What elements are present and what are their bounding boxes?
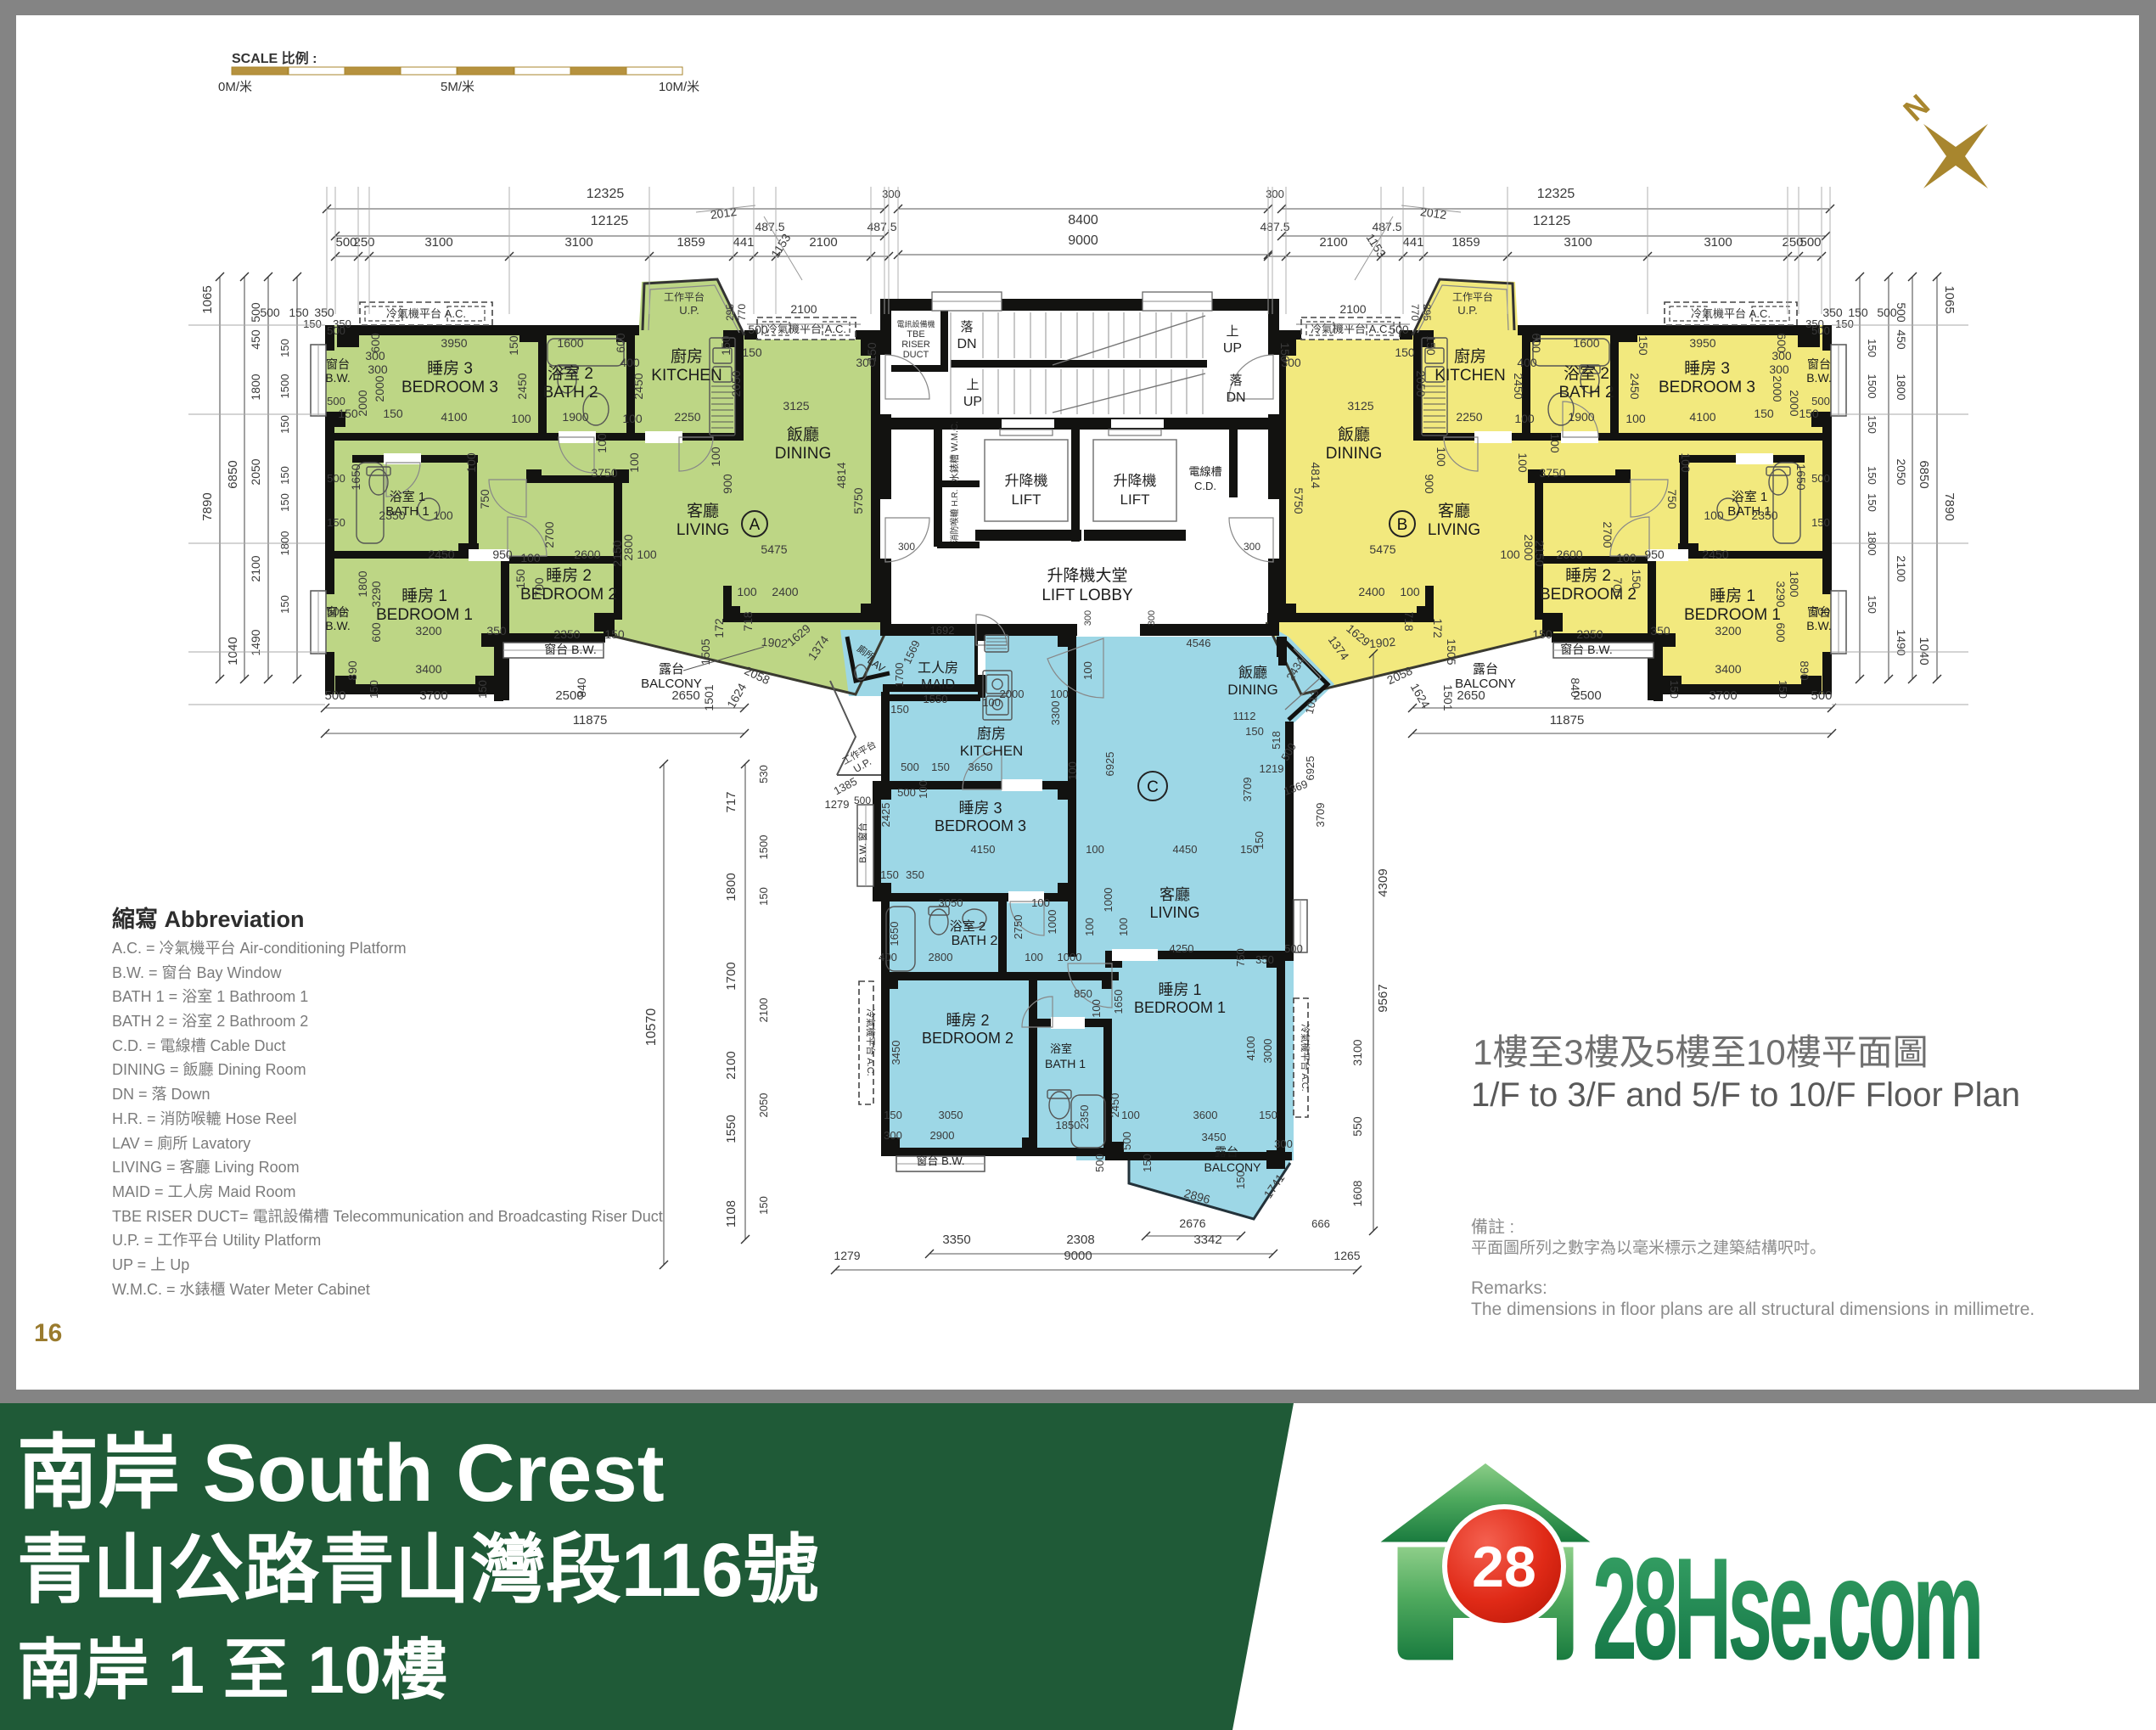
svg-text:150: 150: [880, 868, 899, 881]
svg-text:3200: 3200: [415, 624, 441, 638]
svg-text:冷氣機平台 A.C.: 冷氣機平台 A.C.: [1691, 307, 1771, 320]
svg-text:DINING: DINING: [1326, 445, 1383, 463]
svg-text:2250: 2250: [1456, 410, 1482, 424]
svg-text:BEDROOM 3: BEDROOM 3: [401, 379, 498, 396]
svg-text:窗台: 窗台: [1807, 605, 1831, 619]
svg-text:150: 150: [1532, 627, 1552, 641]
svg-text:9567: 9567: [1376, 984, 1390, 1012]
svg-text:2450: 2450: [1512, 373, 1525, 399]
svg-text:441: 441: [733, 235, 754, 250]
svg-text:BALCONY: BALCONY: [1455, 677, 1516, 691]
svg-text:100: 100: [1679, 452, 1693, 473]
svg-text:100: 100: [1548, 433, 1562, 453]
svg-text:3400: 3400: [415, 662, 441, 676]
svg-text:窗台: 窗台: [326, 605, 350, 619]
svg-text:4814: 4814: [834, 462, 848, 488]
svg-text:4546: 4546: [1187, 637, 1211, 649]
svg-text:南岸 1 至 10樓: 南岸 1 至 10樓: [17, 1632, 447, 1707]
svg-text:1859: 1859: [1451, 235, 1479, 250]
svg-text:500: 500: [260, 306, 280, 319]
svg-text:BEDROOM 3: BEDROOM 3: [935, 817, 1026, 834]
svg-text:U.P.: U.P.: [1457, 304, 1478, 317]
svg-text:150: 150: [1278, 342, 1292, 362]
svg-text:1040: 1040: [226, 637, 240, 665]
svg-text:150: 150: [742, 345, 762, 359]
svg-text:2900: 2900: [930, 1129, 955, 1142]
svg-text:100: 100: [1121, 1109, 1140, 1121]
svg-text:A: A: [750, 516, 761, 534]
svg-text:100: 100: [1500, 548, 1520, 561]
svg-text:100: 100: [627, 452, 641, 473]
svg-text:窗台 B.W.: 窗台 B.W.: [1560, 643, 1612, 656]
svg-text:750: 750: [1665, 489, 1679, 509]
svg-text:MAID: MAID: [921, 677, 955, 692]
svg-text:上: 上: [1226, 324, 1238, 339]
svg-text:150: 150: [604, 627, 625, 641]
svg-text:1000: 1000: [1046, 910, 1058, 935]
svg-text:2050: 2050: [249, 458, 262, 485]
svg-text:1500: 1500: [1866, 374, 1878, 399]
svg-text:150: 150: [1637, 335, 1650, 356]
svg-text:2400: 2400: [1358, 585, 1384, 598]
svg-text:1550: 1550: [724, 1115, 738, 1143]
svg-text:1500: 1500: [757, 835, 770, 860]
svg-text:150: 150: [1848, 306, 1868, 319]
svg-text:LIFT: LIFT: [1012, 491, 1042, 508]
svg-text:2100: 2100: [757, 998, 770, 1023]
svg-text:100: 100: [1081, 661, 1094, 680]
svg-text:4100: 4100: [1689, 410, 1715, 424]
svg-text:500: 500: [897, 786, 916, 799]
svg-text:1850: 1850: [1056, 1119, 1081, 1132]
svg-text:4814: 4814: [1309, 462, 1322, 488]
svg-text:150: 150: [719, 335, 733, 356]
svg-text:1000: 1000: [1058, 951, 1082, 963]
svg-text:7890: 7890: [200, 492, 215, 520]
svg-text:12125: 12125: [1533, 214, 1571, 228]
svg-text:100: 100: [595, 433, 609, 453]
svg-text:487.5: 487.5: [1260, 220, 1289, 233]
svg-text:3950: 3950: [1689, 336, 1715, 350]
svg-text:666: 666: [1311, 1217, 1330, 1230]
svg-text:150: 150: [865, 342, 879, 362]
svg-text:DINING = 飯廳 Dining Room: DINING = 飯廳 Dining Room: [112, 1061, 306, 1078]
svg-text:150: 150: [884, 1109, 902, 1121]
svg-text:2450: 2450: [1109, 1093, 1121, 1118]
svg-text:B.W. = 窗台 Bay Window: B.W. = 窗台 Bay Window: [112, 964, 283, 981]
svg-text:KITCHEN: KITCHEN: [960, 743, 1024, 759]
svg-text:3125: 3125: [783, 399, 809, 413]
svg-text:250: 250: [1782, 235, 1803, 250]
svg-text:TBE: TBE: [907, 329, 924, 340]
svg-text:770: 770: [736, 304, 748, 321]
svg-text:水錶糟 W.M.C.: 水錶糟 W.M.C.: [948, 421, 960, 482]
svg-text:10570: 10570: [644, 1008, 659, 1047]
svg-text:718: 718: [1402, 611, 1416, 632]
svg-text:C: C: [1147, 778, 1159, 796]
svg-text:UP: UP: [1223, 341, 1242, 356]
svg-text:100: 100: [1117, 918, 1130, 936]
svg-text:350: 350: [1822, 306, 1843, 319]
svg-text:窗台: 窗台: [1807, 357, 1831, 371]
svg-text:浴室 1: 浴室 1: [1732, 490, 1768, 504]
svg-text:600: 600: [1530, 333, 1543, 353]
svg-text:飯廳: 飯廳: [787, 425, 819, 444]
svg-text:2100: 2100: [790, 302, 817, 316]
svg-text:UP = 上 Up: UP = 上 Up: [112, 1256, 189, 1273]
svg-text:DN: DN: [957, 337, 976, 351]
svg-text:3700: 3700: [419, 688, 447, 703]
svg-text:1040: 1040: [1917, 637, 1931, 665]
svg-text:150: 150: [1866, 493, 1878, 512]
svg-text:3450: 3450: [890, 1041, 902, 1065]
svg-text:U.P. = 工作平台 Utility Platform: U.P. = 工作平台 Utility Platform: [112, 1232, 321, 1249]
svg-text:落: 落: [960, 320, 973, 334]
svg-text:LIVING: LIVING: [677, 521, 729, 539]
svg-text:BALCONY: BALCONY: [1204, 1160, 1262, 1174]
svg-text:300: 300: [365, 349, 385, 362]
svg-text:SCALE 比例 :: SCALE 比例 :: [232, 50, 317, 66]
svg-text:2000: 2000: [356, 390, 369, 416]
svg-text:3290: 3290: [369, 581, 383, 607]
svg-text:718: 718: [741, 611, 755, 632]
svg-text:浴室 2: 浴室 2: [547, 364, 593, 383]
svg-text:UP: UP: [963, 395, 982, 409]
svg-text:KITCHEN: KITCHEN: [651, 367, 721, 385]
svg-text:1800: 1800: [249, 374, 262, 400]
svg-text:300: 300: [1769, 362, 1789, 376]
svg-text:150: 150: [1777, 680, 1789, 699]
svg-text:500: 500: [1284, 942, 1303, 955]
svg-text:B.W.: B.W.: [1806, 371, 1832, 385]
svg-text:3750: 3750: [591, 466, 617, 480]
svg-text:300: 300: [1147, 610, 1157, 626]
svg-text:RISER: RISER: [901, 340, 930, 350]
svg-text:3650: 3650: [969, 761, 993, 773]
svg-text:350: 350: [333, 317, 351, 330]
svg-text:150: 150: [476, 680, 489, 699]
svg-text:2800: 2800: [1522, 534, 1536, 560]
svg-text:450: 450: [1895, 329, 1908, 350]
svg-text:冷氣機平台 A.C.: 冷氣機平台 A.C.: [865, 1008, 877, 1076]
svg-text:1650: 1650: [1112, 990, 1125, 1014]
svg-text:4450: 4450: [1173, 843, 1198, 856]
svg-text:1550: 1550: [924, 693, 948, 705]
svg-text:100: 100: [1066, 761, 1079, 780]
svg-text:100: 100: [1031, 896, 1050, 909]
svg-text:840: 840: [575, 677, 588, 698]
svg-text:備註 :: 備註 :: [1471, 1217, 1514, 1237]
svg-text:KITCHEN: KITCHEN: [1435, 367, 1505, 385]
svg-text:100: 100: [464, 452, 478, 473]
svg-text:1279: 1279: [825, 798, 850, 811]
svg-text:冷氣機平台 A.C.: 冷氣機平台 A.C.: [1300, 1024, 1311, 1091]
svg-text:DN: DN: [1226, 390, 1245, 405]
svg-text:250: 250: [353, 235, 374, 250]
svg-text:4150: 4150: [971, 843, 996, 856]
svg-text:150: 150: [278, 339, 291, 357]
svg-text:3100: 3100: [564, 235, 592, 250]
svg-text:1501: 1501: [702, 684, 716, 711]
svg-text:500: 500: [1811, 395, 1830, 407]
svg-text:700: 700: [1611, 577, 1625, 598]
svg-text:2600: 2600: [1556, 548, 1582, 561]
svg-text:B: B: [1397, 516, 1408, 534]
svg-text:LIFT LOBBY: LIFT LOBBY: [1042, 587, 1133, 604]
svg-text:2100: 2100: [724, 1051, 738, 1079]
svg-text:2800: 2800: [929, 951, 953, 963]
svg-text:11875: 11875: [573, 713, 608, 727]
svg-text:廚房: 廚房: [1454, 346, 1486, 366]
svg-text:3100: 3100: [1564, 235, 1592, 250]
svg-text:150: 150: [303, 317, 322, 330]
svg-text:W.M.C. = 水錶櫃 Water Meter Cabin: W.M.C. = 水錶櫃 Water Meter Cabinet: [112, 1281, 370, 1298]
svg-text:150: 150: [1259, 1109, 1277, 1121]
svg-text:150: 150: [1630, 569, 1643, 589]
svg-text:100: 100: [917, 780, 929, 799]
svg-text:浴室 1: 浴室 1: [390, 490, 426, 504]
svg-text:150: 150: [278, 595, 291, 614]
svg-text:150: 150: [1811, 516, 1830, 529]
svg-text:BALCONY: BALCONY: [641, 677, 702, 691]
svg-text:28Hse.com: 28Hse.com: [1592, 1529, 1980, 1690]
svg-text:100: 100: [982, 696, 1001, 709]
svg-text:100: 100: [1090, 999, 1103, 1018]
svg-text:1700: 1700: [893, 663, 906, 688]
svg-text:1800: 1800: [1788, 570, 1801, 597]
svg-text:睡房 1: 睡房 1: [401, 587, 447, 605]
svg-text:500: 500: [327, 395, 345, 407]
svg-text:B.W.: B.W.: [1806, 619, 1832, 632]
svg-text:客廳: 客廳: [1159, 886, 1190, 903]
svg-text:3342: 3342: [1193, 1233, 1221, 1247]
svg-text:500: 500: [324, 688, 345, 703]
svg-text:2350: 2350: [1751, 508, 1777, 522]
svg-text:350: 350: [1255, 953, 1274, 966]
svg-text:2600: 2600: [574, 548, 600, 561]
svg-text:100: 100: [1704, 508, 1724, 522]
svg-text:BATH 1 = 浴室 1 Bathroom 1: BATH 1 = 浴室 1 Bathroom 1: [112, 988, 308, 1005]
svg-text:2350: 2350: [379, 508, 405, 522]
svg-text:BEDROOM 3: BEDROOM 3: [1659, 379, 1755, 396]
svg-text:2100: 2100: [249, 555, 262, 581]
svg-text:530: 530: [757, 765, 770, 784]
svg-text:窗台: 窗台: [326, 357, 350, 371]
svg-text:C.D.: C.D.: [1194, 480, 1216, 492]
svg-text:DUCT: DUCT: [903, 350, 929, 360]
svg-text:1112: 1112: [1233, 710, 1256, 722]
svg-text:3100: 3100: [424, 235, 452, 250]
svg-text:1608: 1608: [1350, 1180, 1364, 1206]
svg-text:100: 100: [1083, 918, 1096, 936]
svg-text:2000: 2000: [1000, 688, 1025, 700]
svg-text:500: 500: [854, 795, 871, 806]
svg-text:睡房 3: 睡房 3: [427, 359, 473, 378]
svg-text:550: 550: [1350, 1116, 1364, 1137]
svg-text:5475: 5475: [1369, 542, 1395, 556]
svg-text:100: 100: [1400, 585, 1420, 598]
svg-text:3300: 3300: [1049, 701, 1062, 726]
svg-text:100: 100: [1516, 452, 1530, 473]
svg-text:客廳: 客廳: [687, 502, 719, 520]
svg-text:6850: 6850: [226, 460, 240, 488]
svg-text:睡房 3: 睡房 3: [1684, 359, 1730, 378]
svg-text:172: 172: [712, 618, 726, 638]
svg-text:350: 350: [906, 868, 924, 881]
svg-text:3125: 3125: [1347, 399, 1373, 413]
svg-text:TBE RISER DUCT= 電訊設備槽 Telecomm: TBE RISER DUCT= 電訊設備槽 Telecommunication …: [112, 1208, 663, 1225]
svg-text:150: 150: [1754, 407, 1774, 420]
svg-text:300: 300: [368, 362, 388, 376]
svg-text:150: 150: [1866, 339, 1878, 357]
svg-text:100: 100: [1625, 412, 1646, 425]
svg-text:150: 150: [507, 335, 520, 356]
svg-text:1902: 1902: [1368, 635, 1396, 651]
svg-text:950: 950: [1644, 548, 1665, 561]
svg-text:700: 700: [532, 577, 546, 598]
svg-text:500: 500: [1093, 1154, 1106, 1172]
svg-text:2350: 2350: [1576, 627, 1603, 641]
svg-text:1650: 1650: [349, 463, 362, 490]
svg-text:150: 150: [890, 703, 909, 716]
svg-text:1065: 1065: [1942, 285, 1957, 313]
svg-text:4100: 4100: [1244, 1036, 1257, 1061]
svg-text:150: 150: [1866, 466, 1878, 485]
svg-text:7890: 7890: [1942, 492, 1957, 520]
svg-text:1/F to 3/F and 5/F to 10/F Flo: 1/F to 3/F and 5/F to 10/F Floor Plan: [1471, 1076, 2020, 1114]
svg-text:3600: 3600: [1193, 1109, 1218, 1121]
svg-text:150: 150: [278, 466, 291, 485]
svg-text:900: 900: [721, 474, 734, 494]
svg-text:1700: 1700: [724, 962, 738, 990]
svg-text:890: 890: [1798, 660, 1811, 681]
svg-text:飯廳: 飯廳: [1338, 425, 1370, 444]
svg-text:3750: 3750: [1539, 466, 1565, 480]
svg-text:飯廳: 飯廳: [1238, 665, 1267, 681]
svg-text:9000: 9000: [1068, 233, 1098, 248]
svg-text:300: 300: [1771, 349, 1792, 362]
svg-text:2450: 2450: [1702, 548, 1728, 561]
svg-text:1650: 1650: [1794, 463, 1808, 490]
svg-text:100: 100: [1050, 688, 1069, 700]
svg-text:BEDROOM 1: BEDROOM 1: [1134, 999, 1226, 1016]
svg-text:睡房 1: 睡房 1: [1710, 587, 1755, 605]
svg-text:睡房 1: 睡房 1: [1158, 981, 1201, 998]
svg-text:工作平台: 工作平台: [664, 290, 705, 303]
svg-text:B.W.: B.W.: [325, 371, 351, 385]
svg-text:3100: 3100: [1350, 1039, 1364, 1065]
svg-text:150: 150: [1866, 415, 1878, 434]
svg-text:1樓至3樓及5樓至10樓平面圖: 1樓至3樓及5樓至10樓平面圖: [1473, 1032, 1929, 1072]
svg-text:1900: 1900: [562, 410, 588, 424]
svg-text:睡房 2: 睡房 2: [946, 1012, 989, 1029]
svg-text:1279: 1279: [834, 1249, 860, 1262]
svg-text:LIFT: LIFT: [1120, 491, 1150, 508]
svg-text:2700: 2700: [1601, 521, 1614, 548]
svg-text:100: 100: [622, 412, 643, 425]
svg-text:1600: 1600: [557, 336, 583, 350]
svg-text:12125: 12125: [591, 214, 629, 228]
svg-text:6925: 6925: [1103, 752, 1116, 777]
svg-text:770: 770: [1409, 304, 1421, 321]
svg-text:300: 300: [1083, 610, 1093, 626]
svg-text:C.D. = 電線槽 Cable Duct: C.D. = 電線槽 Cable Duct: [112, 1037, 286, 1054]
svg-text:2400: 2400: [772, 585, 798, 598]
svg-text:縮寫 Abbreviation: 縮寫 Abbreviation: [112, 906, 305, 932]
svg-text:2450: 2450: [428, 548, 454, 561]
svg-text:DINING: DINING: [775, 445, 832, 463]
svg-text:升降機大堂: 升降機大堂: [1047, 566, 1127, 585]
svg-text:冷氣機平台 A.C.: 冷氣機平台 A.C.: [386, 307, 466, 320]
svg-text:350: 350: [1805, 317, 1824, 330]
svg-text:840: 840: [1569, 677, 1582, 698]
svg-text:5475: 5475: [761, 542, 787, 556]
svg-text:3700: 3700: [1709, 688, 1737, 703]
svg-text:6925: 6925: [1304, 756, 1317, 781]
svg-text:3350: 3350: [942, 1233, 970, 1247]
svg-text:100: 100: [737, 585, 757, 598]
svg-text:300: 300: [884, 1129, 902, 1142]
svg-text:睡房 2: 睡房 2: [1565, 566, 1611, 585]
svg-text:300: 300: [1274, 1137, 1293, 1150]
svg-text:150: 150: [383, 407, 403, 420]
svg-text:10M/米: 10M/米: [659, 80, 699, 94]
svg-text:1065: 1065: [200, 285, 215, 313]
svg-text:窗台 B.W.: 窗台 B.W.: [544, 643, 596, 656]
svg-text:2450: 2450: [632, 373, 645, 399]
svg-text:升降機: 升降機: [1005, 473, 1048, 489]
svg-text:電線槽: 電線槽: [1188, 465, 1221, 478]
svg-text:3400: 3400: [1715, 662, 1741, 676]
svg-text:2676: 2676: [1179, 1216, 1205, 1230]
svg-text:150: 150: [1240, 843, 1259, 856]
svg-text:150: 150: [1141, 1154, 1154, 1172]
svg-text:150: 150: [327, 516, 345, 529]
svg-text:500: 500: [1877, 306, 1897, 319]
svg-text:150: 150: [1245, 725, 1264, 738]
svg-text:LIVING: LIVING: [1149, 904, 1199, 921]
svg-text:100: 100: [1514, 412, 1535, 425]
svg-text:150: 150: [931, 761, 950, 773]
svg-text:客廳: 客廳: [1438, 502, 1470, 520]
svg-text:BEDROOM 1: BEDROOM 1: [376, 606, 473, 624]
svg-text:廚房: 廚房: [671, 346, 703, 366]
svg-text:睡房 2: 睡房 2: [546, 566, 592, 585]
svg-text:150: 150: [1866, 595, 1878, 614]
svg-text:2350: 2350: [1078, 1105, 1091, 1130]
svg-text:浴室: 浴室: [1050, 1042, 1072, 1055]
svg-text:3200: 3200: [1715, 624, 1741, 638]
svg-text:400: 400: [1517, 356, 1537, 369]
svg-text:0M/米: 0M/米: [218, 80, 252, 94]
svg-text:2100: 2100: [1895, 555, 1908, 581]
svg-text:1900: 1900: [1568, 410, 1594, 424]
svg-text:1500: 1500: [278, 374, 291, 399]
svg-text:3709: 3709: [1241, 778, 1254, 802]
svg-text:2000: 2000: [373, 375, 386, 402]
svg-text:3290: 3290: [1774, 581, 1788, 607]
svg-text:1902: 1902: [761, 635, 789, 651]
svg-text:100: 100: [1435, 447, 1448, 467]
svg-text:1000: 1000: [1102, 888, 1114, 913]
svg-text:150: 150: [278, 493, 291, 512]
svg-text:150: 150: [1424, 335, 1438, 356]
svg-text:600: 600: [614, 333, 627, 353]
svg-text:950: 950: [492, 548, 513, 561]
svg-text:LIVING: LIVING: [1428, 521, 1480, 539]
svg-text:1600: 1600: [1573, 336, 1599, 350]
svg-text:1501: 1501: [1441, 684, 1455, 711]
